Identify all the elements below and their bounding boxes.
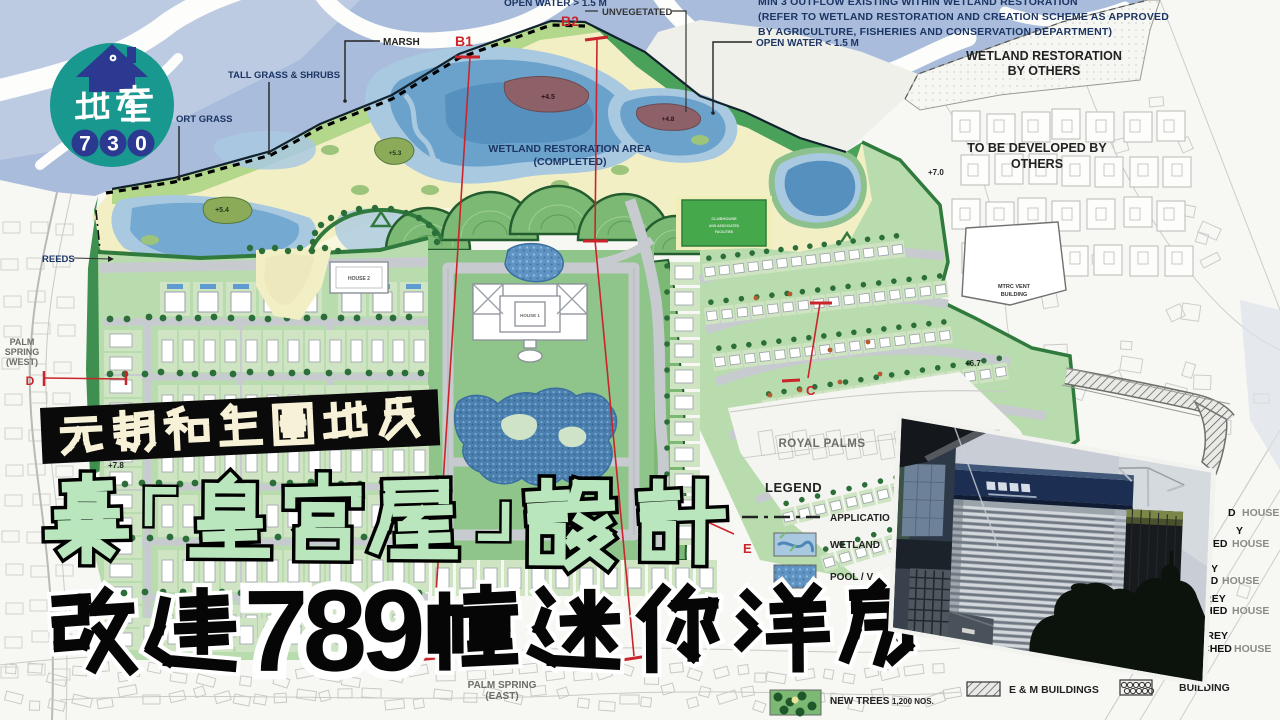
svg-text:D: D [26, 374, 35, 388]
svg-text:(EAST): (EAST) [485, 691, 518, 702]
svg-text:C: C [806, 383, 816, 398]
svg-text:MTRC VENT: MTRC VENT [998, 284, 1031, 290]
svg-text:+5.3: +5.3 [389, 150, 402, 157]
svg-text:SPRING: SPRING [5, 347, 40, 357]
svg-text:(REFER TO WETLAND RESTORATION: (REFER TO WETLAND RESTORATION AND CREATI… [758, 11, 1169, 23]
svg-text:TALL GRASS & SHRUBS: TALL GRASS & SHRUBS [228, 70, 340, 81]
svg-text:HOUSE: HOUSE [1234, 643, 1271, 655]
svg-text:LEGEND: LEGEND [765, 480, 822, 495]
svg-text:APPLICATIO: APPLICATIO [830, 513, 890, 524]
svg-text:Y: Y [1236, 525, 1243, 537]
svg-text:BUILDING: BUILDING [1001, 292, 1028, 298]
svg-text:+5.4: +5.4 [215, 207, 229, 214]
svg-text:REEDS: REEDS [42, 254, 75, 265]
svg-text:1,200 NOS.: 1,200 NOS. [892, 697, 934, 706]
svg-text:NEW TREES: NEW TREES [830, 696, 890, 707]
svg-text:OPEN WATER > 1.5 M: OPEN WATER > 1.5 M [504, 0, 607, 9]
svg-text:(WEST): (WEST) [6, 357, 38, 367]
svg-text:WETLAND: WETLAND [830, 540, 880, 551]
svg-text:CLUBHOUSE: CLUBHOUSE [711, 216, 737, 221]
svg-text:HOUSE: HOUSE [1232, 538, 1269, 550]
svg-text:+6.7: +6.7 [965, 359, 981, 368]
svg-text:HOUSE: HOUSE [1242, 507, 1279, 519]
svg-text:FACILITIES: FACILITIES [715, 230, 734, 234]
svg-text:BY AGRICULTURE, FISHERIES AND: BY AGRICULTURE, FISHERIES AND CONSERVATI… [758, 26, 1112, 38]
svg-text:HOUSE 1: HOUSE 1 [520, 313, 540, 318]
svg-text:D: D [1228, 507, 1236, 519]
svg-text:789: 789 [244, 565, 423, 696]
svg-text:OTHERS: OTHERS [1011, 157, 1063, 171]
svg-text:BY OTHERS: BY OTHERS [1008, 64, 1081, 78]
svg-text:MARSH: MARSH [383, 37, 420, 48]
svg-text:AND ASSOCIATED: AND ASSOCIATED [709, 224, 740, 228]
svg-text:0: 0 [135, 133, 147, 156]
svg-text:WETLAND RESTORATION AREA: WETLAND RESTORATION AREA [488, 143, 652, 155]
svg-text:WETLAND RESTORATION: WETLAND RESTORATION [966, 49, 1122, 63]
svg-text:MIN 3 OUTFLOW EXISTING WITHIN: MIN 3 OUTFLOW EXISTING WITHIN WETLAND RE… [758, 0, 1078, 8]
svg-text:ORT GRASS: ORT GRASS [176, 114, 232, 125]
svg-text:3: 3 [107, 133, 119, 156]
svg-text:+7.8: +7.8 [108, 461, 124, 470]
svg-text:+7.0: +7.0 [928, 168, 944, 177]
svg-text:ROYAL PALMS: ROYAL PALMS [778, 438, 865, 450]
svg-text:PALM: PALM [10, 337, 35, 347]
svg-text:+4.8: +4.8 [662, 116, 675, 123]
svg-text:HOUSE: HOUSE [1232, 605, 1269, 617]
svg-text:POOL / V: POOL / V [830, 572, 873, 583]
svg-text:B1: B1 [455, 33, 473, 49]
svg-text:E: E [743, 541, 752, 556]
svg-text:E & M BUILDINGS: E & M BUILDINGS [1009, 684, 1099, 696]
svg-text:B2: B2 [561, 13, 579, 29]
svg-text:UNVEGETATED: UNVEGETATED [602, 7, 673, 18]
svg-text:HOUSE: HOUSE [1222, 575, 1259, 587]
svg-text:OPEN WATER < 1.5 M: OPEN WATER < 1.5 M [756, 38, 859, 49]
svg-text:TO BE DEVELOPED BY: TO BE DEVELOPED BY [967, 141, 1107, 155]
svg-text:PALM SPRING: PALM SPRING [468, 680, 537, 691]
svg-text:HOUSE 2: HOUSE 2 [348, 276, 370, 282]
svg-text:+4.5: +4.5 [541, 94, 555, 101]
svg-text:7: 7 [79, 133, 91, 156]
